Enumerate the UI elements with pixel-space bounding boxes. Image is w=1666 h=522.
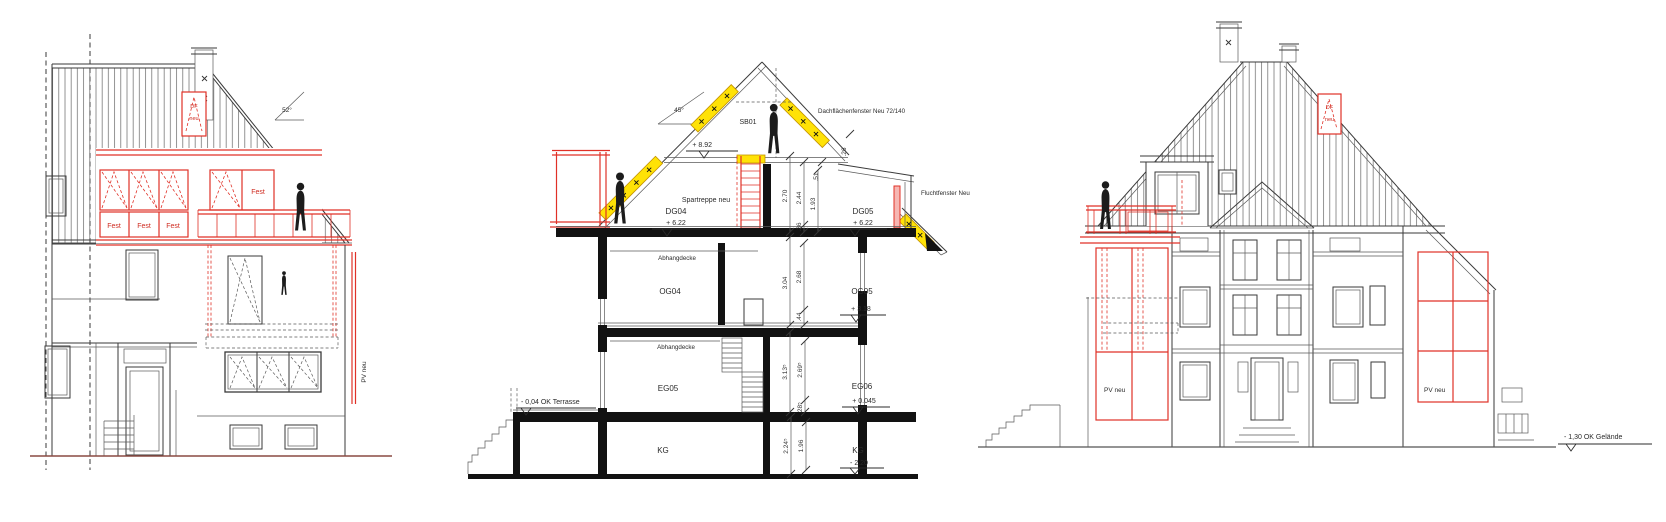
dimension-chain-kg: 2.24⁵ 1.96 xyxy=(783,413,810,478)
dim-value: 1.96 xyxy=(798,439,805,452)
level-marker-ground: - 1,30 OK Gelände xyxy=(1558,434,1652,451)
terrace-wall xyxy=(513,422,520,474)
dimension-chain-og: 3.04 2.68 .44 xyxy=(782,233,808,329)
collar-beam-floor xyxy=(664,155,848,163)
escape-window-note: Fluchtfenster Neu xyxy=(921,190,970,197)
dim-value: 2.68 xyxy=(796,270,803,283)
level-marker-ridge: + 8.92 xyxy=(686,142,738,158)
level-value: + 8.92 xyxy=(692,142,712,149)
left-elevation: DF neu 52° Fest Fest Fest Fest xyxy=(30,34,392,470)
level-value: - 2.20 xyxy=(850,460,868,467)
base-slab xyxy=(468,474,918,479)
interior-wall-kg xyxy=(763,422,770,474)
room-label-kg-left: KG xyxy=(657,446,669,455)
basement-window xyxy=(285,425,317,449)
roof-window-highlight xyxy=(599,156,663,220)
escape-window-red xyxy=(894,186,900,228)
right-outer-wall xyxy=(858,237,867,474)
room-label-kg-right: KG xyxy=(852,446,864,455)
level-value: + 0.045 xyxy=(852,398,876,405)
stair-run xyxy=(722,338,763,412)
room-label-eg06: EG06 xyxy=(852,382,873,391)
interior-wall-og xyxy=(718,243,725,325)
df-marker-line1: DF xyxy=(190,104,198,110)
room-label-og04: OG04 xyxy=(659,287,681,296)
balcony-below-dashed xyxy=(205,245,338,348)
dim-value: .44 xyxy=(796,312,803,321)
dimension-chain-eg: 3.13⁵ 2.69⁵ .28⁵ xyxy=(782,328,809,416)
pv-label: PV neu xyxy=(1104,387,1126,394)
person-icon xyxy=(281,271,286,295)
room-label-dg05: DG05 xyxy=(853,207,874,216)
df-marker-line2: neu xyxy=(189,116,198,122)
dim-value: 2.69⁵ xyxy=(797,362,804,378)
dim-value: .28⁵ xyxy=(797,402,804,414)
dim-value: .36 xyxy=(796,222,803,231)
exterior-stairs xyxy=(468,420,513,474)
chimney xyxy=(1279,44,1299,62)
facade-outline xyxy=(1172,226,1403,447)
interior-wall-eg xyxy=(763,332,770,412)
drawing-canvas: DF neu 52° Fest Fest Fest Fest xyxy=(0,0,1666,522)
fixed-window-label: Fest xyxy=(251,189,265,196)
person-icon xyxy=(768,104,779,153)
space-saving-stair xyxy=(737,156,760,237)
pv-strip: PV neu xyxy=(352,252,368,404)
triple-window xyxy=(225,352,321,392)
dim-value: .51 xyxy=(813,172,820,181)
fixed-window-label: Fest xyxy=(166,223,180,230)
roof-angle-symbol: 52° xyxy=(275,92,304,120)
attic-window xyxy=(1219,170,1236,194)
cross-section: 45° SB01 xyxy=(468,62,970,479)
fixed-window-label: Fest xyxy=(137,223,151,230)
room-label-eg05: EG05 xyxy=(658,384,679,393)
interior-door xyxy=(744,299,763,325)
dimension-chain-dg: 2.70 2.44 1.93 .36 .51 .26 xyxy=(782,130,854,236)
chimney xyxy=(1216,22,1242,62)
roof-window-highlight xyxy=(780,98,829,147)
room-label-og05: OG05 xyxy=(851,287,873,296)
dim-value: 2.44 xyxy=(796,191,803,204)
roof-angle-label: 52° xyxy=(282,106,292,114)
side-wing xyxy=(1426,226,1534,447)
ceiling-label: Abhangdecke xyxy=(657,344,695,351)
attic-wall xyxy=(763,164,771,228)
dim-value: 1.93 xyxy=(810,197,817,210)
pv-label: PV neu xyxy=(361,361,368,383)
roof-window-note: Dachflächenfenster Neu 72/140 xyxy=(818,108,906,115)
entry-door-unit xyxy=(96,343,176,456)
level-value: + 3.18 xyxy=(851,306,871,313)
pv-panel-right: PV neu xyxy=(1418,252,1488,402)
dim-value: 3.04 xyxy=(782,276,789,289)
fixed-window-label: Fest xyxy=(107,223,121,230)
dim-value: 2.24⁵ xyxy=(783,438,790,454)
roof-angle-label: 45° xyxy=(674,106,684,114)
upper-window xyxy=(126,250,158,300)
ceiling-label: Abhangdecke xyxy=(658,255,696,262)
roof-dormer xyxy=(1140,156,1214,226)
pv-panel-left: PV neu xyxy=(1086,248,1178,447)
left-outer-wall xyxy=(598,237,607,474)
exterior-stairs xyxy=(986,405,1060,447)
dormer-window-band: Fest Fest Fest Fest xyxy=(96,148,322,243)
ridge-room-label: SB01 xyxy=(739,119,756,126)
level-value: + 6.22 xyxy=(666,220,686,227)
pv-label: PV neu xyxy=(1424,387,1446,394)
basement-window xyxy=(230,425,262,449)
room-label-dg04: DG04 xyxy=(666,207,687,216)
og-ceiling-slab xyxy=(598,323,867,337)
dim-value: .26 xyxy=(841,147,848,156)
dim-value: 2.70 xyxy=(782,189,789,202)
right-elevation: DF neu xyxy=(978,22,1652,451)
df-window-marker: DF neu xyxy=(182,92,206,136)
terrace-note: - 0,04 OK Terrasse xyxy=(521,399,580,406)
stair-note: Spartreppe neu xyxy=(682,197,730,204)
architectural-drawing-sheet: DF neu 52° Fest Fest Fest Fest xyxy=(0,0,1666,522)
level-value: + 6.22 xyxy=(853,220,873,227)
df-marker-line1: DF xyxy=(1326,105,1334,111)
roof-window-highlight xyxy=(691,85,738,132)
dim-value: 3.13⁵ xyxy=(782,364,789,380)
balcony-door-window-dashed xyxy=(228,256,262,324)
df-marker-line2: neu xyxy=(1325,117,1334,123)
entrance-door xyxy=(1235,358,1299,442)
eg-floor-slab xyxy=(513,412,916,422)
df-window-marker: DF neu xyxy=(1318,94,1341,134)
ground-note: - 1,30 OK Gelände xyxy=(1564,434,1622,441)
